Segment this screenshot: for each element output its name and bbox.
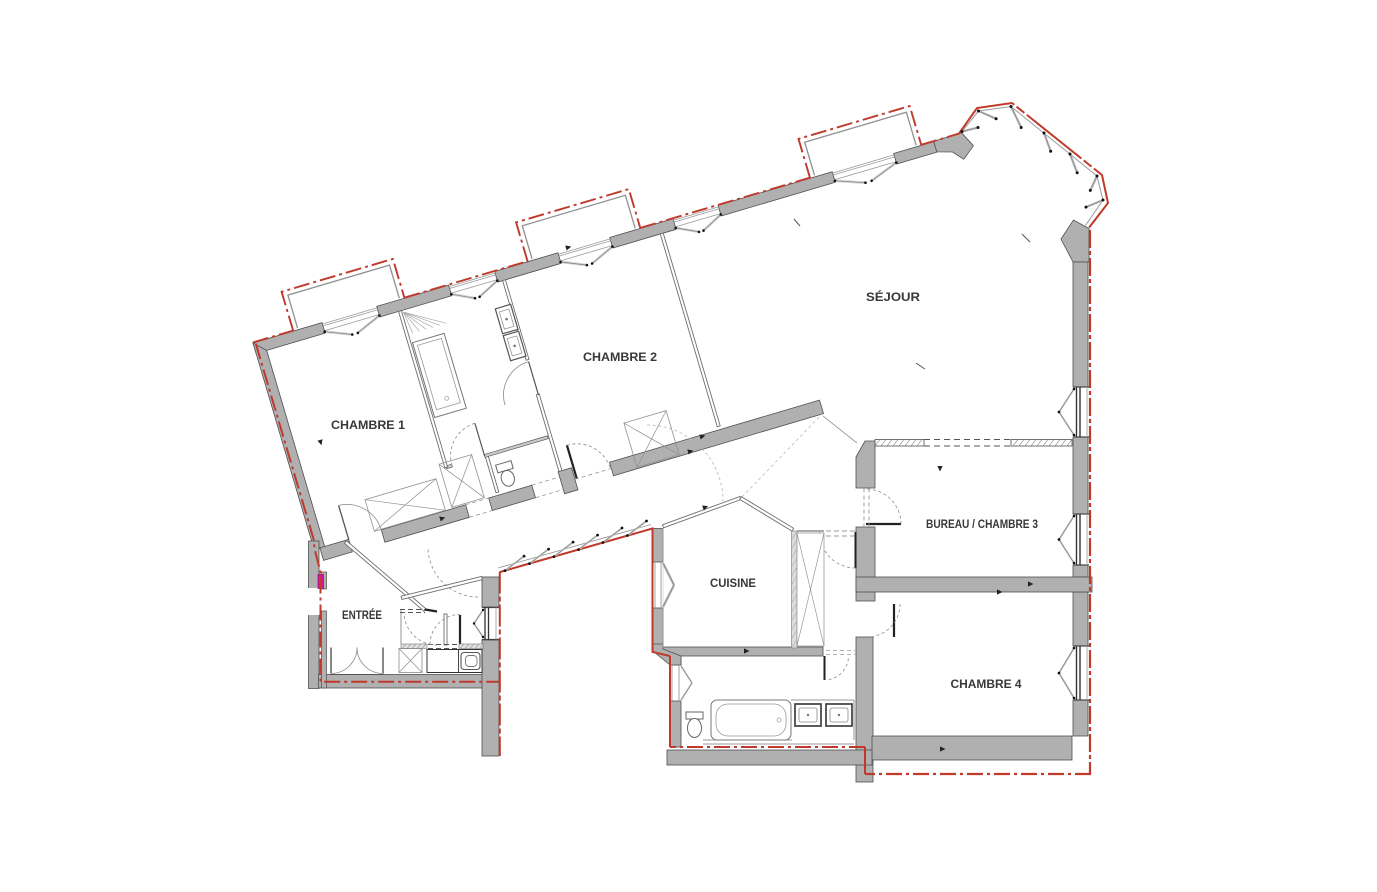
- svg-text:CHAMBRE 4: CHAMBRE 4: [951, 677, 1022, 691]
- svg-text:ENTRÉE: ENTRÉE: [342, 608, 382, 622]
- svg-text:SÉJOUR: SÉJOUR: [866, 289, 920, 304]
- svg-text:CHAMBRE 2: CHAMBRE 2: [583, 350, 657, 364]
- svg-text:CHAMBRE 1: CHAMBRE 1: [331, 418, 405, 432]
- svg-text:BUREAU / CHAMBRE 3: BUREAU / CHAMBRE 3: [926, 517, 1038, 531]
- svg-text:CUISINE: CUISINE: [710, 576, 756, 590]
